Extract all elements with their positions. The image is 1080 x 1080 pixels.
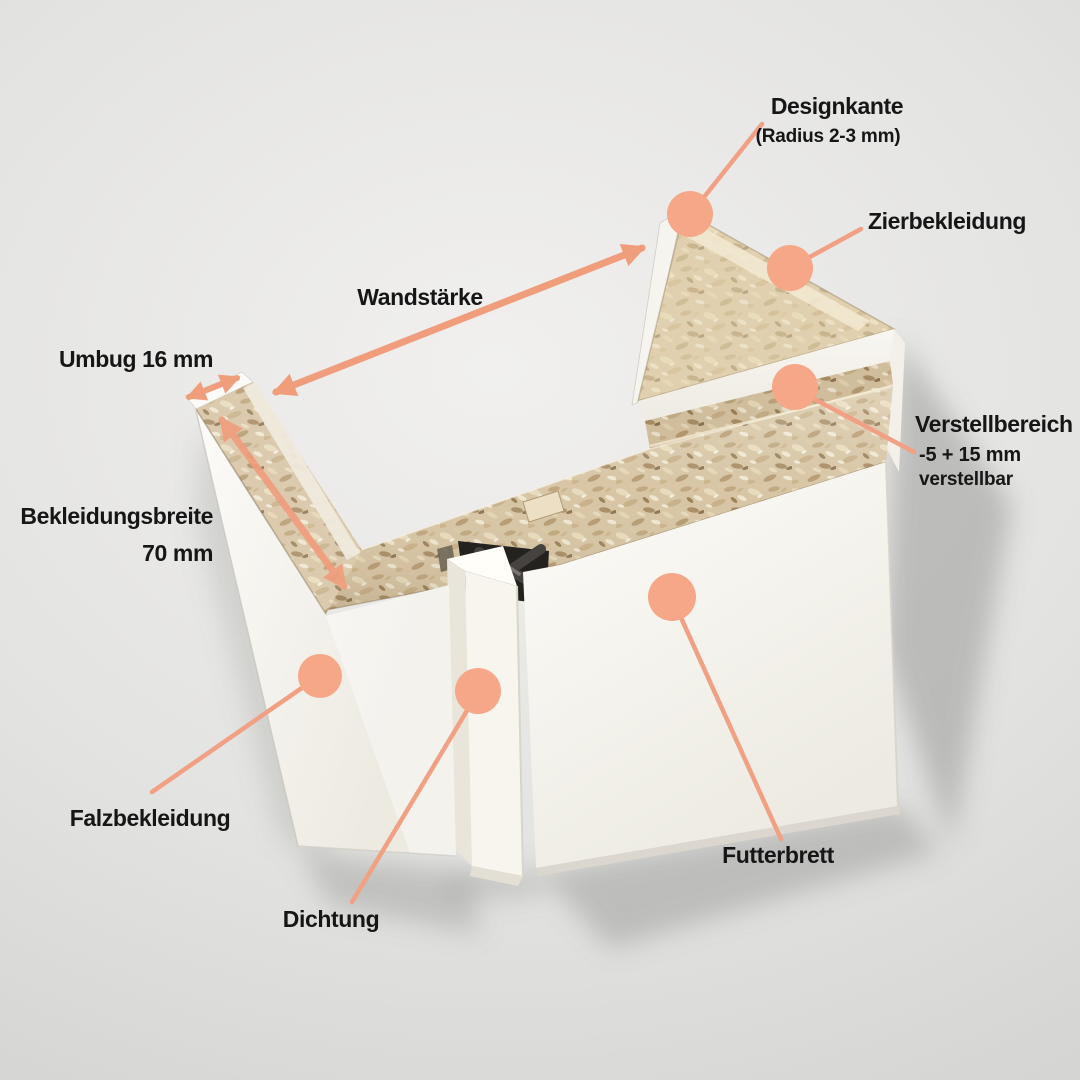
marker-verstellbereich bbox=[772, 364, 818, 410]
label-verstellbereich-note: verstellbar bbox=[919, 469, 1013, 490]
label-designkante-radius: (Radius 2-3 mm) bbox=[756, 126, 901, 147]
label-dichtung: Dichtung bbox=[283, 907, 379, 933]
label-zierbekleidung: Zierbekleidung bbox=[868, 209, 1026, 235]
marker-zierbekleidung bbox=[767, 245, 813, 291]
label-verstellbereich: Verstellbereich bbox=[915, 412, 1073, 438]
marker-falzbekleidung bbox=[298, 654, 342, 698]
marker-futterbrett bbox=[648, 573, 696, 621]
marker-designkante bbox=[667, 191, 713, 237]
seal-rail bbox=[447, 546, 523, 886]
label-wandstaerke: Wandstärke bbox=[357, 285, 483, 311]
label-designkante: Designkante bbox=[771, 94, 903, 120]
label-futterbrett: Futterbrett bbox=[722, 843, 834, 869]
wandstaerke-arrow bbox=[276, 248, 642, 392]
label-umbug: Umbug 16 mm bbox=[59, 347, 213, 373]
door-frame-diagram: Designkante (Radius 2-3 mm) Zierbekleidu… bbox=[0, 0, 1080, 1080]
label-verstellbereich-range: -5 + 15 mm bbox=[919, 444, 1021, 466]
rail-front-face bbox=[465, 571, 523, 876]
label-bekleidungsbreite: Bekleidungsbreite bbox=[20, 504, 213, 530]
marker-dichtung bbox=[455, 668, 501, 714]
label-bekleidungsbreite-value: 70 mm bbox=[142, 541, 213, 567]
label-falzbekleidung: Falzbekleidung bbox=[70, 806, 231, 832]
